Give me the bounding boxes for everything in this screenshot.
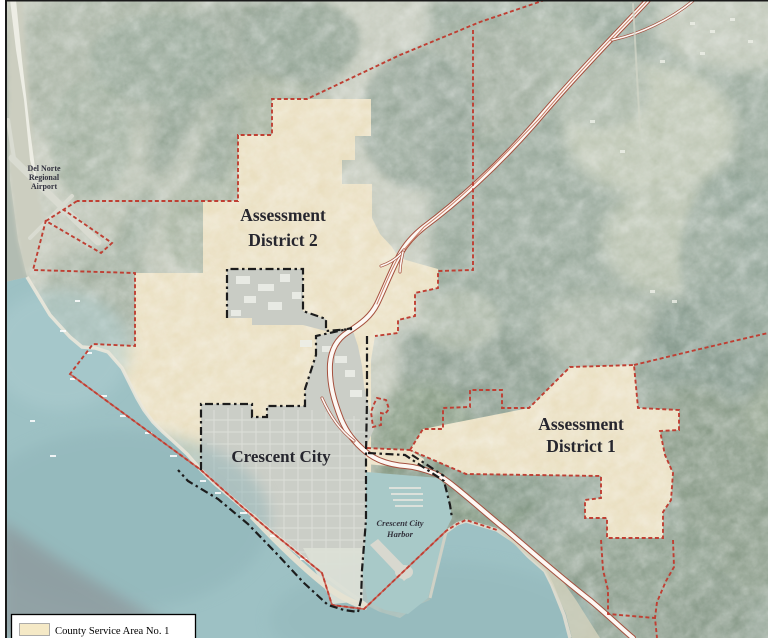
svg-text:Crescent City: Crescent City <box>231 447 331 466</box>
svg-text:Regional: Regional <box>29 173 60 182</box>
svg-text:Assessment: Assessment <box>538 414 624 434</box>
svg-text:Assessment: Assessment <box>240 205 326 225</box>
svg-text:Harbor: Harbor <box>386 529 414 539</box>
svg-text:District 2: District 2 <box>248 230 318 250</box>
svg-text:Airport: Airport <box>31 182 58 191</box>
svg-text:Del Norte: Del Norte <box>27 164 61 173</box>
svg-text:County Service Area No. 1: County Service Area No. 1 <box>55 626 169 637</box>
svg-text:Crescent City: Crescent City <box>377 518 424 528</box>
svg-text:District 1: District 1 <box>546 436 616 456</box>
